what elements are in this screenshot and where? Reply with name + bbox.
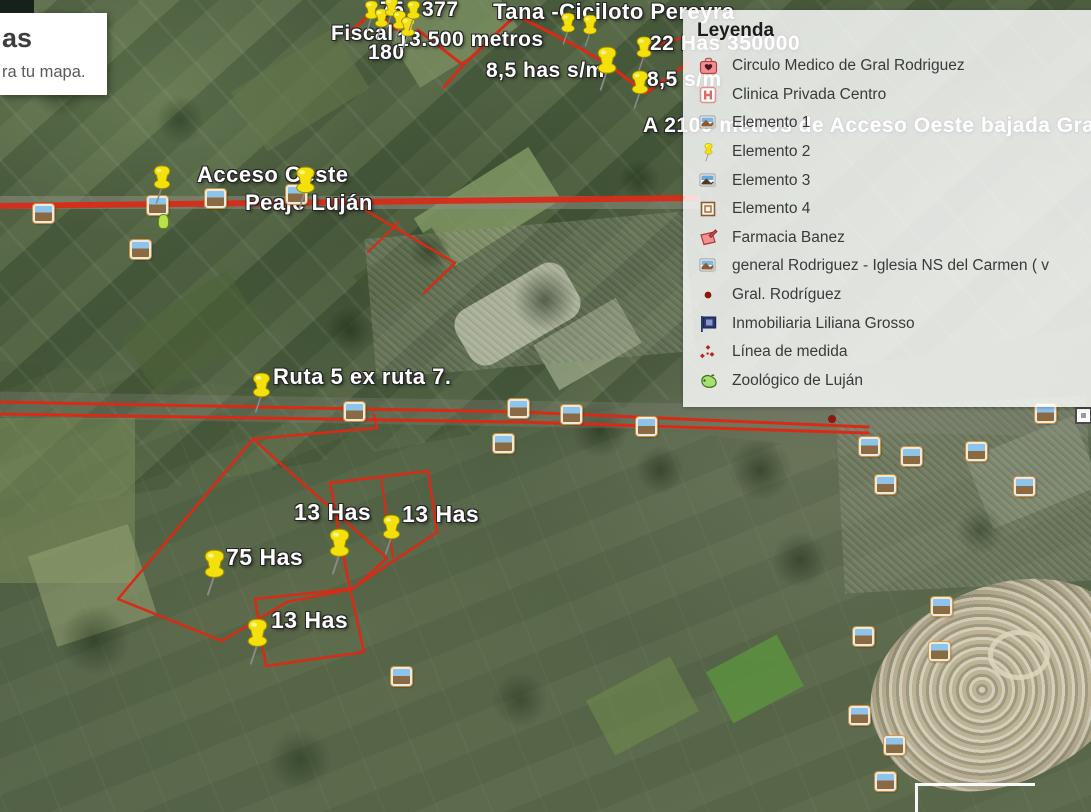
legend-item-label: Elemento 2 bbox=[732, 143, 810, 161]
photo-marker-icon[interactable] bbox=[875, 772, 896, 791]
medical-bag-icon bbox=[697, 57, 719, 75]
photo-marker-icon[interactable] bbox=[929, 642, 950, 661]
card-title-fragment: as bbox=[2, 23, 32, 54]
photo-icon bbox=[697, 258, 719, 274]
measure-icon bbox=[697, 344, 719, 360]
red-dot-icon bbox=[697, 290, 719, 300]
photo-marker-icon[interactable] bbox=[875, 475, 896, 494]
selection-bracket bbox=[915, 783, 918, 812]
peaje-parcel-edge bbox=[368, 222, 399, 252]
my-maps-card: as ra tu mapa. bbox=[0, 13, 107, 95]
pushpin-icon[interactable] bbox=[580, 14, 600, 48]
legend-item-elemento-3[interactable]: Elemento 3 bbox=[697, 166, 1091, 195]
card-subtitle-fragment: ra tu mapa. bbox=[2, 63, 85, 82]
ruta5-line-2 bbox=[0, 414, 868, 433]
square-marker-icon[interactable] bbox=[1075, 407, 1091, 424]
photo-marker-icon[interactable] bbox=[1014, 477, 1035, 496]
legend-item-label: Elemento 4 bbox=[732, 200, 810, 218]
pushpin-icon[interactable] bbox=[628, 70, 652, 110]
map-label: 75 Has bbox=[226, 544, 303, 571]
photo-marker-icon[interactable] bbox=[636, 417, 657, 436]
pushpin-icon bbox=[697, 143, 719, 162]
photo-marker-icon[interactable] bbox=[966, 442, 987, 461]
parcel-edge bbox=[444, 65, 463, 87]
map-label: 377 bbox=[422, 0, 459, 22]
animal-icon bbox=[697, 373, 719, 389]
photo-marker-icon[interactable] bbox=[931, 597, 952, 616]
photo-marker-icon[interactable] bbox=[33, 204, 54, 223]
pushpin-icon[interactable] bbox=[379, 514, 404, 556]
legend-item-linea-medida[interactable]: Línea de medida bbox=[697, 338, 1091, 367]
photo-icon bbox=[697, 115, 719, 131]
legend-item-label: Elemento 1 bbox=[732, 114, 810, 132]
pushpin-icon[interactable] bbox=[200, 549, 229, 597]
map-label: 13 Has bbox=[402, 501, 479, 528]
pushpin-icon[interactable] bbox=[558, 12, 578, 46]
photo-marker-icon[interactable] bbox=[901, 447, 922, 466]
pushpin-icon[interactable] bbox=[633, 36, 655, 72]
photo-marker-icon[interactable] bbox=[508, 399, 529, 418]
legend-item-label: Elemento 3 bbox=[732, 172, 810, 190]
pushpin-icon[interactable] bbox=[593, 46, 621, 92]
legend-item-gral-rodriguez[interactable]: Gral. Rodríguez bbox=[697, 281, 1091, 310]
flag-icon bbox=[697, 315, 719, 333]
hospital-h-icon bbox=[697, 86, 719, 104]
legend-item-label: Inmobiliaria Liliana Grosso bbox=[732, 315, 915, 333]
legend-item-label: Gral. Rodríguez bbox=[732, 286, 841, 304]
legend-item-label: Farmacia Banez bbox=[732, 229, 845, 247]
legend-title: Leyenda bbox=[697, 20, 1091, 42]
photo-marker-icon[interactable] bbox=[493, 434, 514, 453]
legend-item-elemento-4[interactable]: Elemento 4 bbox=[697, 195, 1091, 224]
legend-item-label: Circulo Medico de Gral Rodriguez bbox=[732, 57, 965, 75]
square-outline-icon bbox=[697, 201, 719, 217]
pharmacy-icon bbox=[697, 229, 719, 246]
photo-marker-icon[interactable] bbox=[853, 627, 874, 646]
photo-marker-icon[interactable] bbox=[205, 189, 226, 208]
cutoff-dark-element bbox=[0, 0, 34, 13]
map-canvas[interactable]: 75 377 Fiscal 180 13.500 metros Tana -Ci… bbox=[0, 0, 1091, 812]
selection-bracket bbox=[915, 783, 1035, 786]
map-label: 13 Has bbox=[294, 499, 371, 526]
green-mini-pin-icon[interactable] bbox=[158, 214, 169, 229]
legend-item-label: Línea de medida bbox=[732, 343, 847, 361]
pushpin-icon[interactable] bbox=[150, 165, 174, 205]
map-label: Ruta 5 ex ruta 7. bbox=[273, 364, 451, 390]
legend-item-label: Zoológico de Luján bbox=[732, 372, 863, 390]
legend-item-label: Clinica Privada Centro bbox=[732, 86, 886, 104]
pushpin-icon[interactable] bbox=[243, 618, 272, 666]
pushpin-icon[interactable] bbox=[292, 166, 319, 211]
pushpin-icon[interactable] bbox=[249, 372, 274, 414]
photo-marker-icon[interactable] bbox=[884, 736, 905, 755]
photo-icon bbox=[697, 173, 719, 189]
legend-item-inmobiliaria[interactable]: Inmobiliaria Liliana Grosso bbox=[697, 309, 1091, 338]
legend-item-circulo-medico[interactable]: Circulo Medico de Gral Rodriguez bbox=[697, 52, 1091, 81]
map-label: 13 Has bbox=[271, 607, 348, 634]
photo-marker-icon[interactable] bbox=[391, 667, 412, 686]
legend-item-elemento-1[interactable]: Elemento 1 bbox=[697, 109, 1091, 138]
map-label: 8,5 has s/m bbox=[486, 59, 605, 83]
legend-item-iglesia[interactable]: general Rodriguez - Iglesia NS del Carme… bbox=[697, 252, 1091, 281]
legend-item-label: general Rodriguez - Iglesia NS del Carme… bbox=[732, 257, 1049, 275]
pushpin-icon[interactable] bbox=[325, 528, 354, 576]
legend-item-clinica[interactable]: Clinica Privada Centro bbox=[697, 81, 1091, 110]
photo-marker-icon[interactable] bbox=[859, 437, 880, 456]
legend-item-zoologico[interactable]: Zoológico de Luján bbox=[697, 367, 1091, 396]
red-dot-marker-icon[interactable] bbox=[828, 415, 836, 423]
photo-marker-icon[interactable] bbox=[561, 405, 582, 424]
photo-marker-icon[interactable] bbox=[849, 706, 870, 725]
pushpin-icon[interactable] bbox=[404, 0, 423, 32]
legend-item-elemento-2[interactable]: Elemento 2 bbox=[697, 138, 1091, 167]
photo-marker-icon[interactable] bbox=[344, 402, 365, 421]
photo-marker-icon[interactable] bbox=[130, 240, 151, 259]
legend-panel: Leyenda Circulo Medico de Gral Rodriguez… bbox=[683, 10, 1091, 407]
map-label: Acceso Oeste bbox=[197, 162, 349, 188]
legend-item-farmacia[interactable]: Farmacia Banez bbox=[697, 224, 1091, 253]
